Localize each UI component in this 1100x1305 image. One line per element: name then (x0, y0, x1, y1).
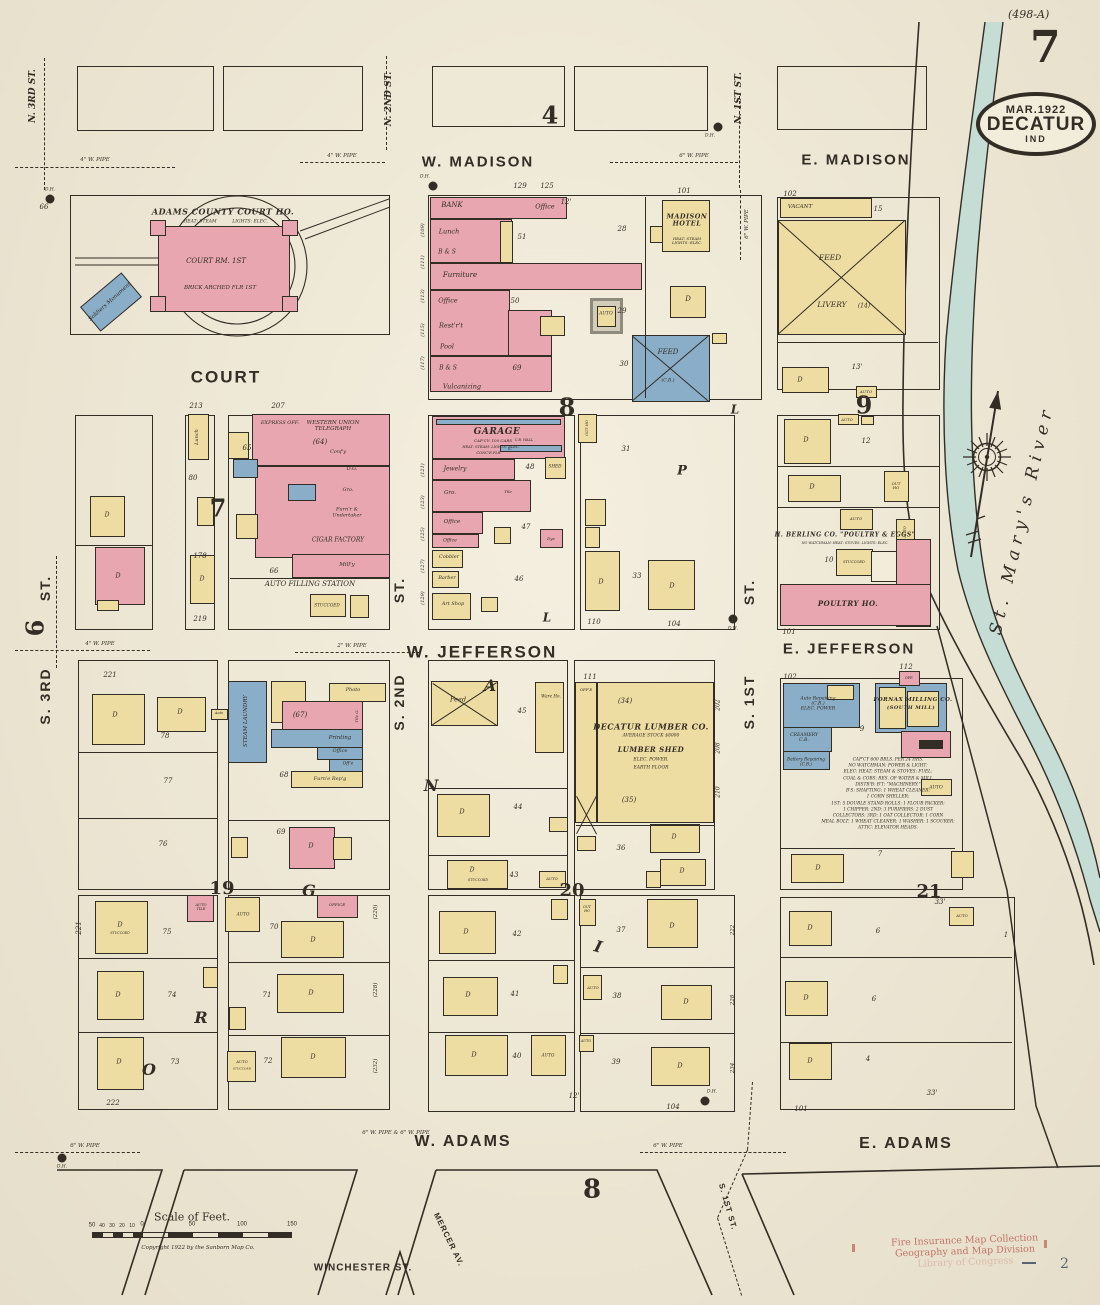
building (551, 899, 568, 920)
pipe-label: 4" W. PIPE (80, 157, 110, 163)
building (282, 296, 298, 312)
lot-line (576, 825, 714, 826)
building-label: BRICK ARCHED FLR 1ST (184, 285, 256, 291)
lot-number: 9 (860, 726, 864, 734)
building (712, 333, 727, 344)
lot-number: 45 (518, 708, 527, 716)
lot-number: 207 (271, 403, 284, 411)
street-label: N. 1ST ST. (734, 72, 744, 124)
lot-number: 76 (159, 841, 168, 849)
copyright-note: Copyright 1922 by the Sanborn Map Co. (141, 1245, 254, 1251)
building-label: Auto Repairing (C.B.) ELEC. POWER (800, 696, 835, 711)
pipe-line (44, 58, 45, 190)
lot-number: 69 (277, 829, 286, 837)
pipe-label: 4" W. PIPE (327, 153, 357, 159)
lot-number: 75 (163, 929, 172, 937)
block-number: 7 (210, 496, 227, 523)
lot-line (780, 1042, 1012, 1043)
building-label: D (116, 1058, 121, 1065)
pipe-line (300, 162, 385, 163)
building (92, 694, 145, 745)
lot-number: 40 (513, 1053, 522, 1061)
sanborn-logo-badge: MAR.1922 DECATUR IND (976, 92, 1096, 156)
lot-number: 39 (612, 1059, 621, 1067)
lot-number: 1 (1004, 932, 1008, 940)
plat-letter: R (194, 1009, 207, 1027)
building-label: STEAM LAUNDRY (243, 695, 249, 747)
pipe-line (15, 167, 175, 168)
lot-number: 77 (164, 778, 173, 786)
pipe-line (740, 190, 741, 260)
hydrant-label: D.H. (705, 133, 715, 138)
lot-number: 228 (730, 995, 736, 1006)
lot-number: 13' (852, 364, 863, 372)
building (650, 226, 663, 243)
lot-line (230, 578, 390, 579)
building-label: D (683, 998, 688, 1005)
lot-number: (64) (313, 439, 327, 447)
pencil-annotation: 2 (1060, 1256, 1069, 1272)
lot-number: 30 (620, 361, 629, 369)
building-label: AUTO (929, 785, 943, 790)
building-label: Printing (329, 735, 352, 741)
lot-line (580, 1033, 735, 1034)
building-label: OFFICE (329, 903, 345, 907)
lot-number: 15 (874, 206, 883, 214)
street-label: E. JEFFERSON (783, 642, 915, 659)
building-label: Office (438, 297, 458, 304)
building (646, 871, 661, 888)
lot-number: 69 (513, 365, 522, 373)
lot-number: 111 (583, 674, 596, 682)
lot-number: 36 (617, 845, 626, 853)
building-label: CREAMERY C.B. (790, 733, 818, 743)
lot-number: 28 (618, 226, 627, 234)
street-label: E. ADAMS (859, 1135, 953, 1153)
sanborn-map-sheet: (498-A) 7 MAR.1922 DECATUR IND St. Mary'… (0, 0, 1100, 1305)
lot-line (780, 957, 1012, 958)
plat-letter: L (731, 403, 739, 416)
lot-number: 33' (927, 1090, 938, 1098)
scale-tick: 50 (189, 1222, 196, 1229)
building-label: OFF'E (580, 688, 592, 692)
lot-number: 102 (783, 674, 796, 682)
building-label: SHED (549, 465, 562, 470)
building-label: Furn'r & Undertaker (332, 507, 361, 518)
lot-line (780, 848, 955, 849)
building-label: (14) (858, 304, 870, 311)
lot-number: 222 (106, 1100, 119, 1108)
plat-letter: N (424, 777, 439, 795)
building-label: D (310, 936, 315, 943)
lot-number: 10 (825, 557, 834, 565)
building-label: D (471, 1051, 476, 1058)
block-outline (777, 66, 927, 130)
building (233, 459, 258, 478)
building-label: D (685, 296, 691, 304)
lot-line (78, 818, 218, 819)
lot-number: 213 (189, 403, 202, 411)
building-label: Ware Ho. (541, 695, 561, 700)
scale-tick: 30 (109, 1224, 115, 1230)
logo-state: IND (1025, 134, 1047, 144)
lot-number: 4 (866, 1056, 870, 1064)
building-label: B & S (438, 250, 456, 257)
building (919, 740, 943, 749)
building-label: WESTERN UNION TELEGRAPH (307, 420, 360, 432)
lot-number: 68 (280, 772, 289, 780)
lot-number: 178 (193, 553, 206, 561)
lot-line (228, 1035, 390, 1036)
block-number: 20 (559, 881, 584, 901)
plat-letter: G (302, 882, 316, 900)
block-outline (223, 66, 363, 131)
street-label: ST. (38, 575, 54, 601)
building-label: D (200, 577, 205, 584)
building-label: ELEC. POWER. (633, 757, 668, 762)
block-number: 9 (856, 393, 873, 420)
lot-number: 208 (716, 742, 723, 753)
building-label: AUTO (237, 913, 250, 918)
building (203, 967, 218, 988)
stamp-mark (1044, 1240, 1047, 1248)
building-label: AUTO (956, 914, 968, 918)
building-label: C.B. WALL (515, 439, 533, 443)
lot-number: 70 (270, 924, 279, 932)
lot-number: 221 (76, 921, 84, 934)
building-label: Off'e (343, 761, 354, 766)
building (782, 367, 829, 393)
lot-number: 12' (561, 199, 572, 207)
building-label: Gro. (343, 488, 354, 494)
building (494, 527, 511, 544)
building-label: AUTO TILE (196, 903, 207, 911)
building-label: ADAMS COUNTY COURT HO. (152, 208, 294, 217)
building-label: Art Shop (442, 602, 464, 608)
lot-number: 65 (243, 445, 252, 453)
block-number: 19 (209, 879, 234, 899)
lot-number: 42 (513, 931, 522, 939)
building-label: D.G. (347, 467, 358, 473)
pipe-label: 4" W. PIPE (85, 641, 115, 647)
scale-tick: 40 (99, 1224, 105, 1230)
building-label: D (308, 989, 313, 996)
pipe-line (15, 650, 150, 651)
lot-number: 101 (782, 629, 795, 637)
block-number: 8 (583, 1175, 601, 1204)
lot-line (580, 967, 735, 968)
building-label: POULTRY HO. (818, 600, 878, 608)
street-label: ST. (392, 577, 408, 603)
building (236, 514, 258, 539)
lot-number: (109) (421, 223, 427, 236)
building-label: FORNAX MILLING CO. (873, 697, 952, 703)
lot-number: (113) (421, 289, 427, 302)
building-label: Battery Repairing (C.B.) (787, 757, 825, 766)
building (150, 220, 166, 236)
building-label: STUCCOED (468, 879, 488, 883)
plate-reference: (498-A) (1008, 8, 1049, 21)
pipe-line (295, 652, 420, 653)
hydrant-label: D.H. (728, 626, 738, 631)
lot-number: 71 (263, 992, 272, 1000)
building-label: FEED (819, 254, 841, 262)
hydrant-dot (58, 1154, 67, 1163)
plat-letter: P (677, 465, 687, 480)
building-label: D (310, 1053, 315, 1060)
building-label: Lunch (195, 429, 201, 445)
lot-number: (67) (293, 712, 307, 720)
pipe-line (15, 1152, 140, 1153)
lot-number: 101 (794, 1106, 807, 1114)
street-label: COURT (191, 367, 261, 386)
lot-line (777, 507, 940, 508)
scale-bar-coarse (142, 1232, 292, 1238)
building (535, 682, 564, 753)
pipe-line (610, 162, 738, 163)
lot-line (78, 752, 218, 753)
lot-line (228, 820, 390, 821)
lot-number: (115) (421, 323, 427, 336)
building-label: D (669, 582, 674, 589)
lot-number: 202 (716, 699, 723, 710)
building-label: D (465, 991, 470, 998)
building-label: D (672, 835, 677, 842)
pipe-line (640, 1152, 786, 1153)
street-label: N. 2ND ST. (384, 72, 394, 127)
hydrant-dot (46, 195, 55, 204)
hydrant-label: D.H. (420, 174, 430, 179)
building-label: VACANT (788, 204, 812, 210)
lot-number: 33 (633, 573, 642, 581)
building-label: CAP'CY: 100 CARS (474, 439, 512, 443)
lot-line (75, 545, 153, 546)
building-label: D (470, 868, 475, 875)
lot-number: 31 (622, 446, 631, 454)
building-label: NO WATCHMAN: HEAT: STOVES: LIGHTS: ELEC. (802, 542, 889, 546)
building-label: EXPRESS OFF. (261, 421, 299, 427)
lot-number: 7 (878, 851, 882, 859)
logo-city: DECATUR (987, 116, 1085, 134)
building (585, 499, 606, 526)
lot-number: 44 (514, 804, 523, 812)
pencil-dash (1022, 1262, 1036, 1264)
building-label: D (115, 991, 120, 998)
building-label: Photo (346, 688, 361, 694)
lot-number: 43 (510, 872, 519, 880)
pipe-label: 2" W. PIPE (337, 643, 367, 649)
building-label: OFF. (905, 677, 913, 681)
building-label: AUTO (850, 517, 862, 521)
building-label: AUTO (581, 1040, 591, 1044)
building (436, 419, 561, 425)
building-label: OUT HO (583, 906, 591, 914)
hydrant-dot (714, 123, 723, 132)
building-label: Pool (440, 343, 454, 350)
lot-number: 102 (783, 191, 796, 199)
building-label: CONC'R FLR. (476, 451, 501, 455)
street-label: ST. (742, 579, 758, 605)
lot-number: 50 (511, 298, 520, 306)
lot-number: 48 (526, 464, 535, 472)
lot-number: (117) (421, 356, 427, 369)
building-label: AUTO (546, 877, 558, 881)
building-label: AUTO (841, 418, 853, 422)
building-label: D (677, 1062, 682, 1069)
scale-tick: 50 (89, 1223, 96, 1230)
building (871, 551, 899, 582)
lot-number: 6 (876, 928, 880, 936)
hydrant-dot (429, 182, 438, 191)
building-label: AUTO (236, 1060, 248, 1064)
building-label: D (117, 921, 122, 928)
lot-number: 33' (935, 899, 946, 907)
block-outline (77, 66, 214, 131)
plat-letter: A (484, 677, 496, 695)
building-label: D (803, 436, 808, 443)
lot-number: 221 (103, 672, 116, 680)
lot-number: (35) (622, 797, 636, 805)
lot-number: 74 (168, 992, 177, 1000)
lot-number: 210 (716, 786, 723, 797)
building-label: AUTO (860, 390, 872, 394)
lot-number: 41 (511, 991, 520, 999)
lot-number: 38 (613, 993, 622, 1001)
lot-number: (121) (421, 463, 427, 476)
building-label: LUMBER SHED (618, 746, 684, 754)
building (231, 837, 248, 858)
block-number: 6 (23, 620, 50, 637)
street-label: W. JEFFERSON (407, 642, 558, 661)
building-label: D (177, 708, 182, 715)
building (229, 1007, 246, 1030)
lot-number: (228) (373, 983, 379, 998)
scale-tick: 20 (119, 1224, 125, 1230)
street-label: WINCHESTER ST. (314, 1262, 412, 1273)
building-label: Tile (504, 490, 512, 494)
building-label: LIVERY (817, 301, 846, 309)
lot-line (428, 960, 575, 961)
building (158, 226, 290, 312)
building (150, 296, 166, 312)
lot-number: 6 (872, 996, 876, 1004)
building (500, 221, 513, 263)
lot-line (228, 962, 390, 963)
lot-number: 29 (618, 308, 627, 316)
hydrant-label: D.H. (45, 187, 55, 192)
building-label: Office (443, 538, 457, 543)
lot-number: (111) (421, 255, 427, 268)
lot-number: 73 (171, 1059, 180, 1067)
lot-number: (232) (373, 1059, 379, 1074)
building-label: H. BERLING CO. "POULTRY & EGGS" (775, 533, 916, 540)
lot-number: 78 (161, 733, 170, 741)
scale-bar-fine (92, 1232, 142, 1238)
building-label: D (463, 928, 468, 935)
lot-number: 222 (730, 925, 736, 936)
block-outline (574, 66, 708, 131)
lot-number: 51 (518, 234, 527, 242)
lot-number: 129 (513, 183, 526, 191)
lot-number: 12' (569, 1093, 580, 1101)
lot-number: (129) (421, 591, 427, 604)
lot-number: (220) (373, 905, 379, 920)
pipe-label: 6" W. PIPE (744, 209, 750, 239)
scale-tick: 100 (237, 1222, 247, 1229)
hydrant-label: D.H. (707, 1089, 717, 1094)
block-number: 8 (559, 395, 576, 422)
building-label: AUTO (542, 1054, 555, 1059)
pipe-label: 6" W. PIPE (70, 1143, 100, 1149)
lot-number: 234 (730, 1063, 736, 1074)
building (282, 220, 298, 236)
lot-line (78, 1032, 218, 1033)
building-label: D (112, 711, 117, 718)
building-label: Office (333, 749, 348, 755)
building-label: D (105, 513, 110, 520)
building-label: D (797, 376, 802, 383)
building-label: Office (444, 519, 461, 525)
block-number: 4 (542, 103, 559, 130)
lot-line (428, 855, 568, 856)
building-label: D (669, 922, 674, 929)
building-label: OUT HO (892, 482, 901, 491)
building (97, 600, 119, 611)
lot-number: 12 (862, 438, 871, 446)
lot-number: 110 (587, 619, 600, 627)
lot-line (777, 466, 940, 467)
building-label: D (459, 808, 464, 815)
building (447, 860, 508, 889)
lot-line (78, 958, 218, 959)
building-label: AUTO (587, 986, 599, 990)
street-label: E. MADISON (801, 153, 910, 170)
building (549, 817, 568, 832)
building-label: Office (535, 203, 555, 210)
building-label: COURT RM. 1ST (186, 258, 246, 266)
building-label: AUTO (599, 311, 613, 316)
building-label: Conf'y (330, 450, 346, 456)
lot-line (645, 197, 646, 398)
building-label: Feed (450, 696, 466, 703)
building-label: D (308, 842, 313, 849)
building-label: AUTO FILLING STATION (265, 581, 355, 589)
building-label: Cobbler (439, 555, 459, 561)
hydrant-label: D.H. (57, 1164, 67, 1169)
pipe-label: 6" W. PIPE (653, 1143, 683, 1149)
building-label: FEED (658, 349, 679, 357)
building-label: D (815, 864, 820, 871)
lot-number: 104 (667, 621, 680, 629)
building (350, 595, 369, 618)
building-label: GARAGE (474, 427, 521, 437)
lot-line (428, 788, 568, 789)
building (288, 484, 316, 501)
building-label: BANK (441, 202, 463, 210)
building-label: D (803, 994, 808, 1001)
mill-description: CAP'CY 600 BBLS. PER 24 HRS. NO WATCHMAN… (821, 758, 954, 833)
building-label: D (807, 924, 812, 931)
building (553, 965, 568, 984)
pipe-line (56, 556, 57, 668)
street-label: S. 3RD (38, 667, 54, 724)
stamp-mark (852, 1244, 855, 1252)
building-label: EARTH FLOOR (633, 765, 668, 770)
street-label: W. MADISON (422, 155, 535, 172)
lot-number: 47 (522, 524, 531, 532)
plat-letter: L (543, 611, 551, 624)
building (481, 597, 498, 612)
